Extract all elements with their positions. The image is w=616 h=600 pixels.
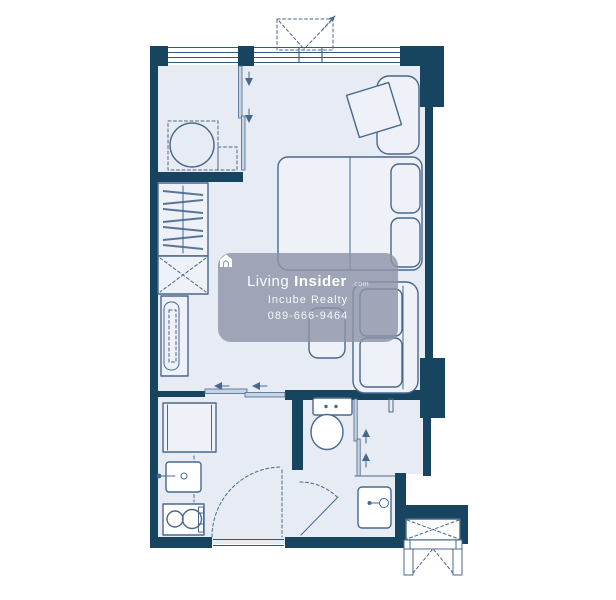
wall-right-upper [425, 107, 433, 358]
utility-sliding-door-panel [239, 66, 243, 118]
pillow [391, 164, 420, 213]
kitchen-sink [166, 462, 201, 492]
utility-sliding-door-panel [242, 116, 246, 170]
brand-living: Living [247, 273, 289, 290]
watermark-agency: Incube Realty [268, 294, 348, 306]
louver-door-leaf [453, 549, 462, 575]
wall-right-lower [423, 418, 431, 476]
wall-ac-niche-top [406, 505, 468, 519]
wall-top-left-block [150, 46, 168, 66]
wall-top-mid-block [238, 46, 254, 66]
shower-glass-panel [357, 439, 360, 476]
casement-window-swing [277, 16, 335, 50]
louver-door-leaf [404, 549, 413, 575]
wall-bottom-right [285, 537, 406, 548]
basin-tap-handle [368, 501, 372, 505]
watermark-phone: 089-666-9464 [268, 310, 349, 322]
wall-top-right-v [420, 64, 444, 107]
louver-door-swing [413, 550, 453, 573]
house-logo-icon [218, 253, 234, 269]
brand-suffix: .com [352, 281, 369, 288]
bathroom-sink [358, 487, 391, 528]
wall-kitchen-partition [158, 391, 205, 397]
brand-insider: Insider [294, 273, 347, 290]
wall-top-right-h [400, 46, 444, 66]
floorplan-canvas: LivingInsider.com Incube Realty 089-666-… [0, 0, 616, 600]
wall-utility-bottom [150, 172, 243, 182]
faucet-base [157, 474, 162, 479]
refrigerator [163, 403, 216, 452]
wall-bottom-left [150, 537, 212, 548]
watermark-card: LivingInsider.com Incube Realty 089-666-… [218, 253, 398, 342]
louver-track [404, 540, 462, 549]
wall-left [150, 46, 158, 548]
tv-console [161, 296, 188, 376]
wall-right-column [420, 358, 445, 418]
windows [166, 16, 400, 65]
wall-bathroom-left [292, 398, 303, 470]
wall-shower-stub [395, 473, 406, 542]
watermark-brand: LivingInsider.com [247, 273, 369, 290]
ac-ledge [404, 519, 462, 575]
shower-glass-panel [354, 399, 357, 441]
